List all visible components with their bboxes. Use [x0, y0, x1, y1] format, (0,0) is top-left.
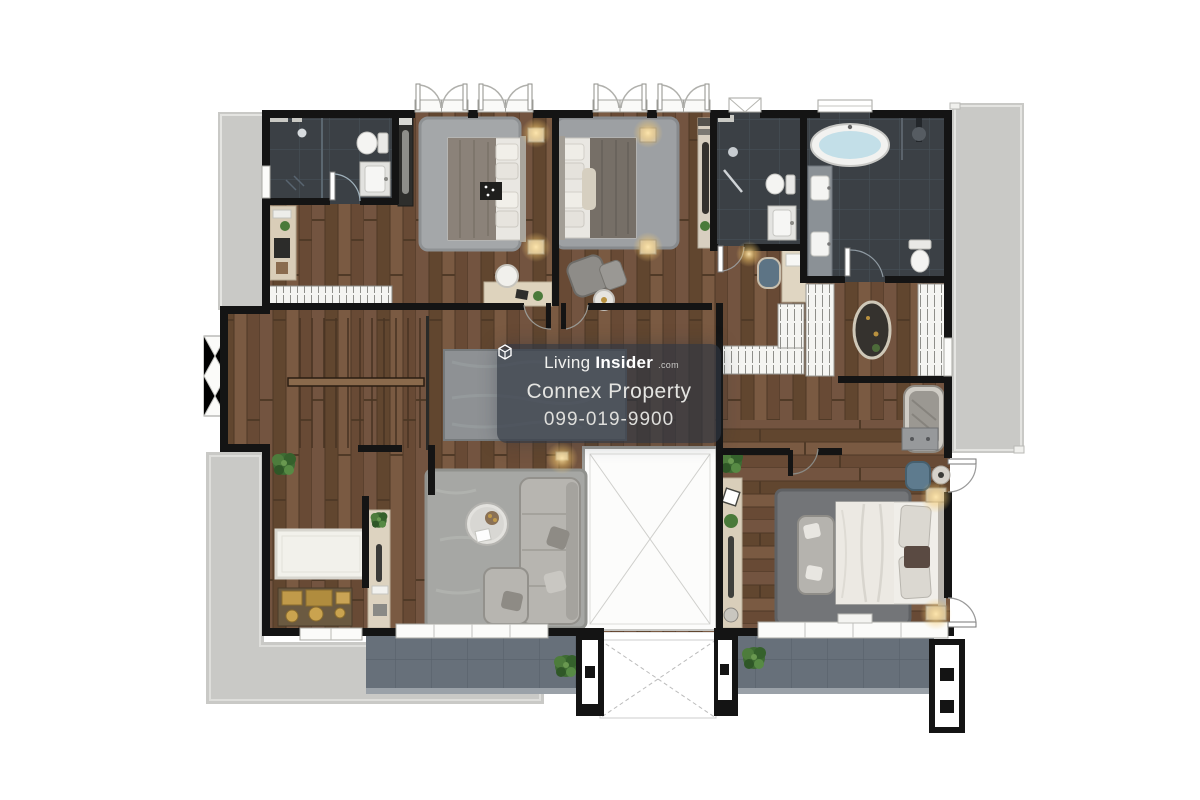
wardrobe-left — [806, 284, 834, 376]
void-open-to-below — [582, 446, 716, 632]
balcony-bottom-center — [366, 634, 580, 694]
door-leaf — [561, 303, 566, 329]
watermark-brand-tld: .com — [658, 361, 679, 371]
bathtub-icon — [811, 124, 889, 166]
double-vanity-icon — [808, 166, 832, 280]
chimney-structure — [932, 642, 962, 730]
terrace-top-left — [218, 112, 266, 310]
open-roof-void-bottom — [600, 632, 716, 718]
floor-plan-image: LivingInsider.com Connex Property 099-01… — [0, 0, 1200, 800]
dressing-ottoman — [854, 302, 890, 358]
wardrobe-right — [918, 284, 946, 376]
master-bed — [836, 500, 946, 606]
toilet-icon — [766, 174, 795, 194]
casement-window — [415, 84, 468, 112]
casement-window — [593, 84, 647, 112]
vanity-sink-icon — [768, 206, 796, 240]
accent-pillow — [904, 546, 930, 568]
checkered-throw-pillow — [480, 182, 502, 200]
watermark-phone: 099-019-9900 — [503, 409, 715, 431]
bedroom-2-bed — [559, 136, 636, 240]
door-leaf — [788, 450, 793, 476]
watermark-brand: LivingInsider.com — [503, 354, 715, 371]
bedroom-1-wardrobe — [398, 116, 413, 206]
bed-end-sofa — [798, 516, 834, 594]
side-window — [262, 166, 270, 198]
headboard — [520, 136, 526, 242]
bedroom-1-bed — [448, 136, 526, 242]
awning-window — [729, 98, 761, 112]
watermark-brand-living: Living — [544, 354, 590, 371]
watermark: LivingInsider.com Connex Property 099-01… — [497, 344, 721, 443]
casement-window — [657, 84, 710, 112]
vanity-stool — [758, 258, 780, 288]
fixed-window — [818, 100, 872, 112]
potted-plant-icon — [272, 453, 296, 475]
potted-plant-icon — [742, 647, 766, 669]
headboard — [559, 136, 565, 240]
potted-plant-icon — [371, 512, 388, 527]
watermark-brand-insider: Insider — [595, 354, 653, 371]
bedroom-1-dresser — [268, 286, 392, 304]
console-shelf — [368, 510, 390, 628]
guest-window — [300, 628, 362, 640]
terrace-right — [950, 103, 1024, 453]
shower-head-icon — [298, 129, 307, 138]
stair-handrail — [288, 378, 424, 386]
toilet-icon — [909, 240, 931, 272]
vanity-sink-icon — [360, 162, 390, 196]
side-window — [944, 338, 952, 376]
round-coffee-table — [466, 503, 508, 545]
structural-pier — [576, 628, 604, 716]
shower-head-icon — [728, 147, 738, 157]
wardrobe-l-shape — [722, 346, 804, 374]
balcony-door-upper — [948, 459, 976, 492]
bolster-pillow — [582, 168, 596, 210]
stair-railing — [426, 316, 429, 450]
family-area — [426, 452, 586, 628]
study-nook — [270, 206, 296, 280]
white-rug — [276, 530, 366, 578]
potted-plant-icon — [554, 655, 578, 677]
living-window — [396, 624, 548, 638]
structural-pier — [714, 628, 738, 716]
master-dresser — [902, 428, 938, 450]
luggage-trunks — [278, 588, 352, 626]
casement-window — [478, 84, 533, 112]
door-leaf — [546, 303, 551, 329]
balcony-door-lower — [948, 598, 976, 627]
watermark-company: Connex Property — [503, 380, 715, 404]
balcony-bottom-right — [736, 634, 934, 694]
windows-top — [415, 84, 872, 112]
toilet-icon — [357, 132, 388, 154]
